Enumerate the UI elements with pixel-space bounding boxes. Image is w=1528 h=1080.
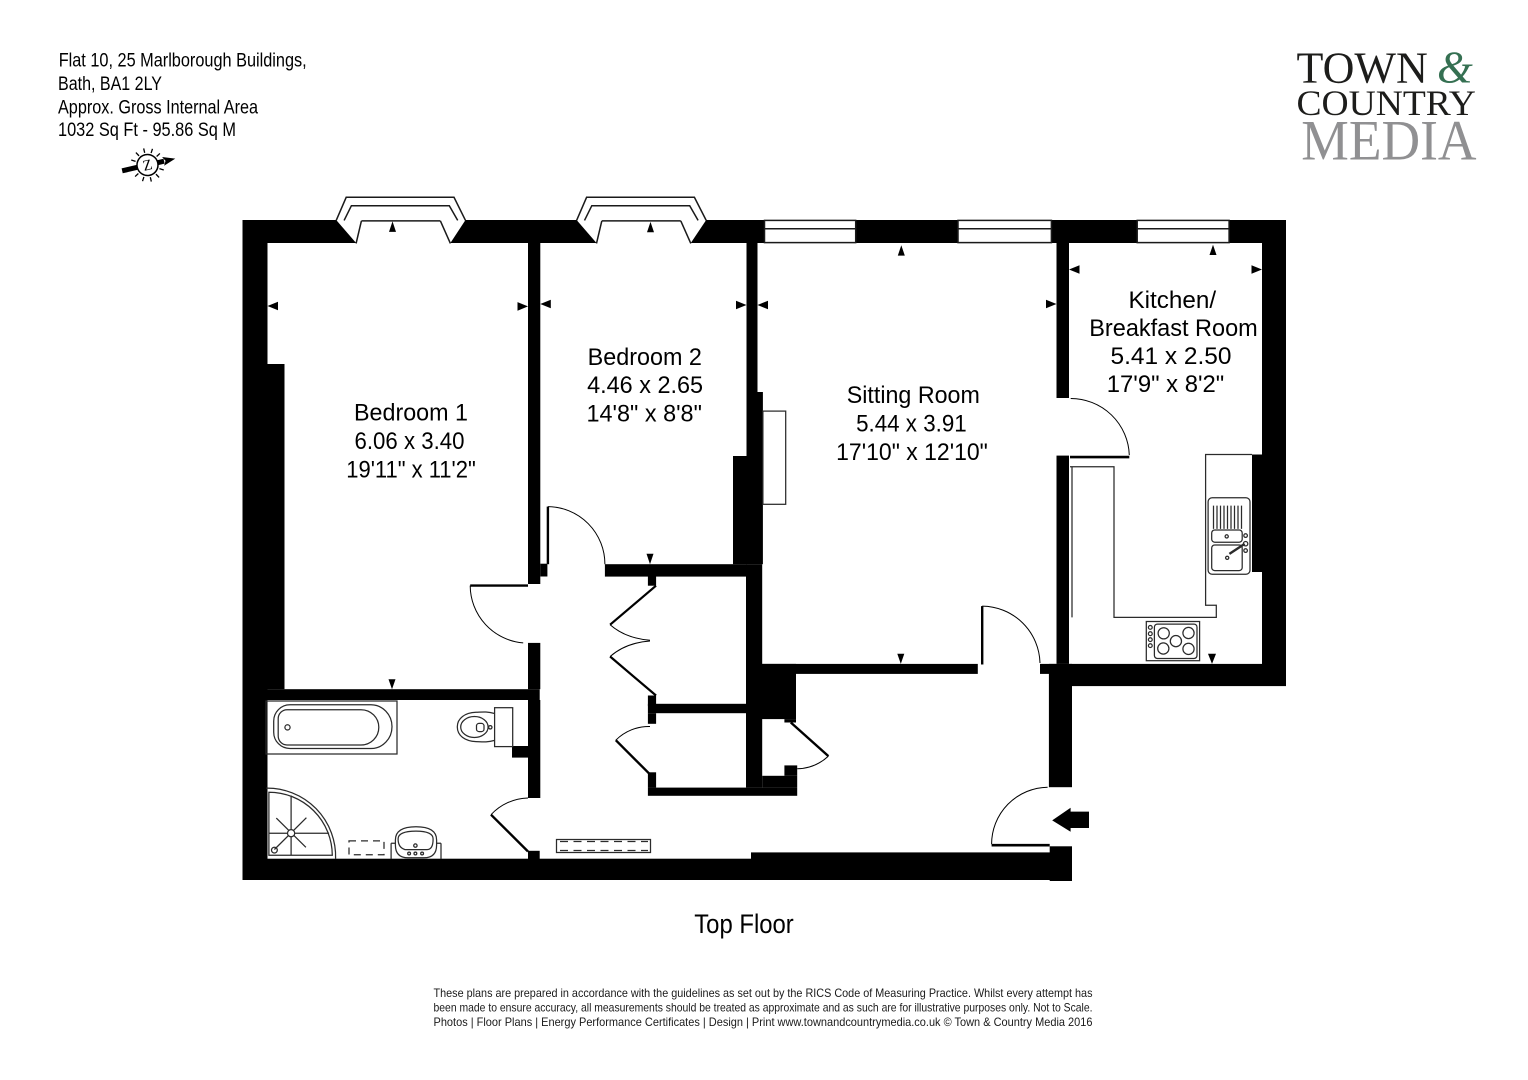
svg-text:17'10" x 12'10": 17'10" x 12'10" <box>836 439 988 466</box>
svg-text:Photos | Floor Plans | Ene: Photos | Floor Plans | Energy Performanc… <box>434 1016 1093 1029</box>
svg-text:Approx. Gross Internal Area: Approx. Gross Internal Area <box>58 98 258 119</box>
svg-text:Top Floor: Top Floor <box>694 909 794 939</box>
svg-text:19'11" x 11'2": 19'11" x 11'2" <box>346 456 476 483</box>
svg-text:been made to ensure accuracy,: been made to ensure accuracy, all measur… <box>434 1002 1093 1015</box>
svg-text:Bath, BA1 2LY: Bath, BA1 2LY <box>58 74 162 95</box>
svg-text:Breakfast Room: Breakfast Room <box>1089 315 1258 342</box>
svg-text:Sitting Room: Sitting Room <box>847 382 980 409</box>
svg-text:4.46 x 2.65: 4.46 x 2.65 <box>587 372 703 399</box>
svg-text:Flat 10, 25 Marlborough Buildi: Flat 10, 25 Marlborough Buildings, <box>59 51 307 72</box>
svg-text:5.44 x 3.91: 5.44 x 3.91 <box>856 411 967 438</box>
svg-text:These plans are prepared in ac: These plans are prepared in accordance w… <box>434 987 1093 1000</box>
svg-text:14'8" x 8'8": 14'8" x 8'8" <box>587 400 702 427</box>
svg-text:Bedroom 2: Bedroom 2 <box>588 344 702 371</box>
svg-text:Kitchen/: Kitchen/ <box>1128 287 1216 314</box>
svg-text:5.41 x 2.50: 5.41 x 2.50 <box>1111 343 1232 370</box>
svg-text:6.06 x 3.40: 6.06 x 3.40 <box>355 428 465 455</box>
svg-text:1032 Sq Ft - 95.86 Sq M: 1032 Sq Ft - 95.86 Sq M <box>58 120 236 141</box>
svg-text:MEDIA: MEDIA <box>1301 110 1476 173</box>
svg-text:Bedroom 1: Bedroom 1 <box>354 400 468 427</box>
svg-text:17'9" x 8'2": 17'9" x 8'2" <box>1107 371 1225 398</box>
